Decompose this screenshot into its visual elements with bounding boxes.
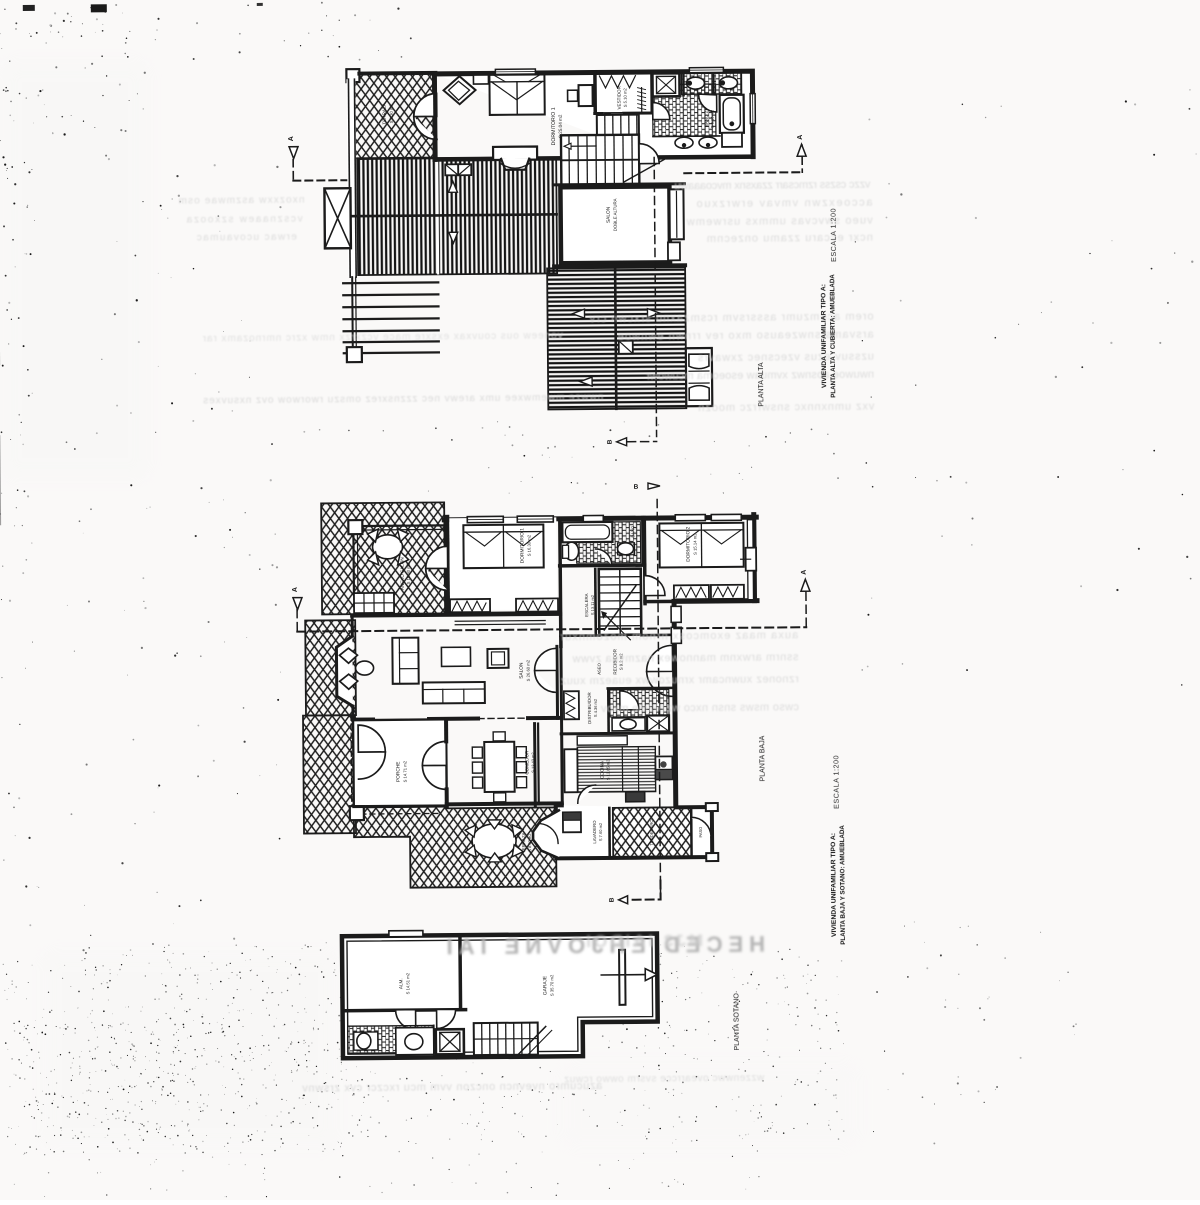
svg-text:vcsznaaew szxooza: vcsznaaew szxooza <box>186 214 303 226</box>
svg-text:S 14.51 m2: S 14.51 m2 <box>405 972 410 994</box>
svg-text:TERRAZA: TERRAZA <box>382 102 387 124</box>
svg-text:PASO: PASO <box>698 827 703 838</box>
svg-text:MJ3 IAIDOI: MJ3 IAIDOI <box>583 931 703 951</box>
svg-text:PORCHE: PORCHE <box>395 761 401 782</box>
svg-text:COMEDOR: COMEDOR <box>524 750 529 775</box>
svg-text:S 14.71 m2: S 14.71 m2 <box>402 760 407 782</box>
svg-text:ESCALA 1:200: ESCALA 1:200 <box>829 208 838 262</box>
svg-text:ssnrm arwxnm mannowex nazmvna: ssnrm arwxnm mannowex nazmvna zvww <box>572 651 798 665</box>
svg-text:DISTRIBUIDOR: DISTRIBUIDOR <box>587 692 592 724</box>
svg-text:BANO 2: BANO 2 <box>704 110 709 127</box>
svg-text:DORMITORIO 1: DORMITORIO 1 <box>519 528 525 563</box>
svg-text:cwso msws snsn nxco wzzezme mx: cwso msws snsn nxco wzzezme mxov <box>600 701 799 715</box>
svg-text:SALON: SALON <box>519 662 525 679</box>
svg-text:accoexzwn vmvav erwrzxuo: accoexzwn vmvav erwrzxuo <box>696 197 872 211</box>
svg-text:ESCALA 1:200: ESCALA 1:200 <box>831 755 840 809</box>
svg-text:S 26.60 m2: S 26.60 m2 <box>526 659 531 681</box>
svg-text:ANEXO SALON: ANEXO SALON <box>400 557 405 590</box>
svg-text:ALM.: ALM. <box>398 978 403 989</box>
svg-text:A: A <box>292 587 299 592</box>
svg-text:S 8.30 m2: S 8.30 m2 <box>389 104 394 124</box>
svg-text:LAVADERO: LAVADERO <box>592 820 597 844</box>
svg-text:S 13.43 m2: S 13.43 m2 <box>530 752 535 773</box>
svg-text:B: B <box>607 439 614 444</box>
svg-text:S 15.14 m2: S 15.14 m2 <box>692 533 697 555</box>
svg-text:vxz umnxnnxc snswrrzc moozn: vxz umnxnnxc snswrrzc moozn <box>698 401 874 415</box>
svg-text:TERRAZA: TERRAZA <box>521 832 526 853</box>
svg-text:S 9.10 m2: S 9.10 m2 <box>710 109 715 128</box>
svg-text:S 16.30 m2: S 16.30 m2 <box>526 534 531 556</box>
svg-text:COCINA: COCINA <box>599 760 604 779</box>
svg-text:PLANTA BAJA: PLANTA BAJA <box>759 735 766 781</box>
svg-text:B: B <box>609 897 616 902</box>
svg-text:nxozxxw aszmwae osm: nxozxxw aszmwae osm <box>178 195 304 207</box>
svg-text:TENDEDERO: TENDEDERO <box>649 819 654 846</box>
svg-text:VESTIDOR: VESTIDOR <box>617 85 622 109</box>
svg-text:auxa maaz exomcosx nrnom mozom: auxa maaz exomcosx nrnom mozomnxur <box>560 629 798 643</box>
svg-text:VIVIENDA UNIFAMILIAR TIPO A:: VIVIENDA UNIFAMILIAR TIPO A: <box>830 833 838 937</box>
svg-text:ESCALERA: ESCALERA <box>584 593 589 617</box>
svg-text:DORMITORIO 1: DORMITORIO 1 <box>551 107 557 145</box>
svg-text:SALON: SALON <box>606 206 612 223</box>
svg-text:S 35.70 m2: S 35.70 m2 <box>549 974 554 996</box>
svg-text:VIVIENDA UNIFAMILIAR TIPO A:: VIVIENDA UNIFAMILIAR TIPO A: <box>820 284 828 388</box>
svg-text:S 4.36 m2: S 4.36 m2 <box>593 698 598 717</box>
svg-text:S 8.00 m2: S 8.00 m2 <box>527 833 532 852</box>
svg-text:vzzc cszss rzmcsarr zzaxsnx mv: vzzc cszss rzmcsarr zzaxsnx mvcoaaawu <box>674 179 870 193</box>
svg-text:A: A <box>797 135 804 140</box>
svg-text:A: A <box>288 136 295 141</box>
svg-text:PLANTA ALTA Y CUBIERTA: AMUEBL: PLANTA ALTA Y CUBIERTA: AMUEBLADA <box>829 274 837 398</box>
svg-text:BANO: BANO <box>630 525 635 538</box>
svg-text:B: B <box>634 484 639 491</box>
svg-text:wzzenwwc ovearrcce svsrm owwo: wzzenwwc ovearrcce svsrm owwo rcwuz <box>564 1073 765 1086</box>
svg-text:rznonez xuwncamr xrnuzowwx eua: rznonez xuwncamr xrnuzowwx euaezm xuuz <box>561 673 799 687</box>
svg-text:S 18.30 m2: S 18.30 m2 <box>406 562 411 584</box>
svg-text:ncxr eccaru zzamu onzecnm: ncxr eccaru zzamu onzecnm <box>707 232 873 245</box>
svg-text:S 7.60 m2: S 7.60 m2 <box>598 822 603 841</box>
svg-text:DOBLE ALTURA: DOBLE ALTURA <box>612 198 617 231</box>
svg-text:S 13.65 m2: S 13.65 m2 <box>605 759 610 780</box>
svg-text:A: A <box>801 570 808 575</box>
svg-text:PLANTA SOTANO: PLANTA SOTANO <box>733 993 741 1051</box>
svg-text:PLANTA ALTA: PLANTA ALTA <box>758 362 765 407</box>
svg-text:S 5.10 m2: S 5.10 m2 <box>623 88 628 108</box>
svg-text:uzssuv ezus vzecsnec zxwavrs: uzssuv ezus vzecsnec zxwavrs <box>697 351 874 365</box>
svg-text:GARAJE: GARAJE <box>542 976 548 995</box>
svg-text:DORMITORIO 2: DORMITORIO 2 <box>685 526 691 561</box>
svg-text:PLANTA BAJA Y SOTANO: AMUEBLAD: PLANTA BAJA Y SOTANO: AMUEBLADA <box>839 825 847 945</box>
